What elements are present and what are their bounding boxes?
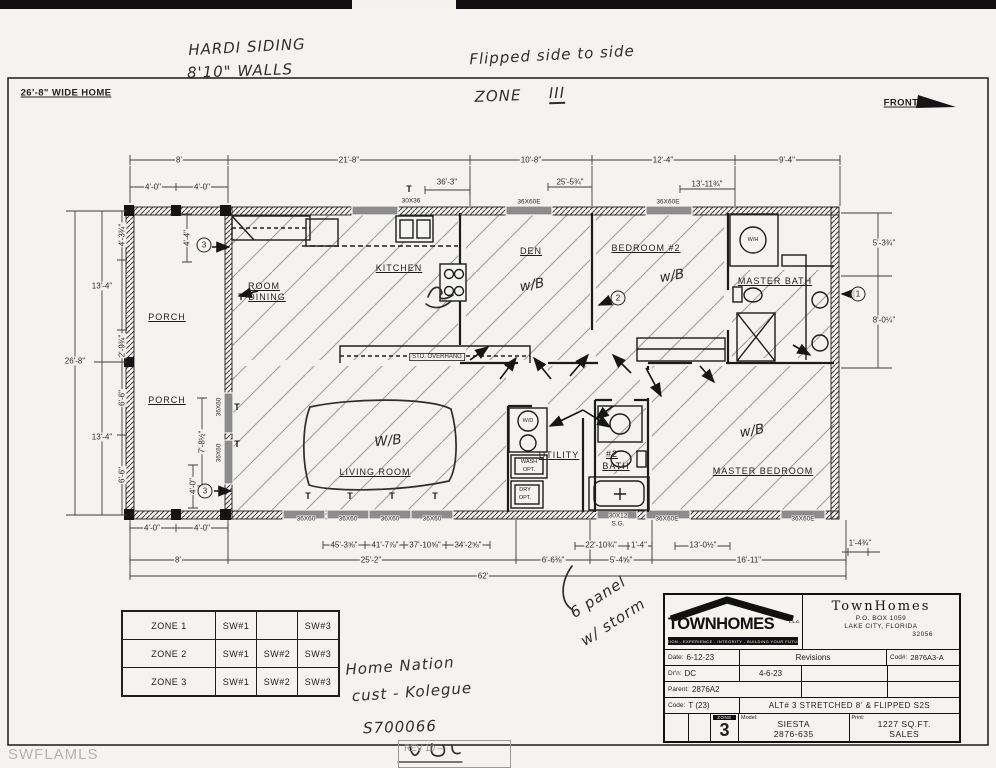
date-cell: Date: 6-12-23: [665, 650, 740, 665]
zone-table-cell: SW#1: [216, 640, 257, 668]
circ-3-bottom: 3: [198, 484, 213, 499]
alt-description-cell: ALT# 3 STRETCHED 8' & FLIPPED S2S: [740, 698, 959, 713]
address-line: P.O. BOX 1059: [803, 615, 959, 622]
dim-left-26-8: 26'-8": [64, 357, 86, 366]
drawn-cell: Dr'n: DC: [665, 666, 740, 681]
dim-porch-4-4: 4'-4": [183, 229, 192, 247]
dim-bot-22-10: 22'-10¾": [584, 541, 618, 550]
dim-left-13-4a: 13'-4": [91, 282, 113, 291]
dim-top-36-3: 36'-3": [436, 178, 458, 187]
address-zip: 32056: [803, 631, 959, 638]
win-bot-36x60e-2: 36X60E: [791, 516, 814, 523]
dim-top-10-8: 10'-8": [520, 156, 542, 165]
room-kitchen: KITCHEN: [376, 263, 423, 273]
dim-bot-45-3: 45'-3⅝": [329, 541, 358, 550]
model-name: SIESTA: [777, 720, 810, 729]
zone-table-cell: [257, 611, 298, 640]
empty-cell: [888, 682, 959, 697]
circ-1: 1: [851, 287, 866, 302]
t-mark-6: T: [432, 491, 438, 501]
win-top-30x36: 30X36: [402, 198, 421, 205]
code-number-value: 2876A3-A: [910, 653, 943, 662]
dim-bot-16-11: 16'-11": [736, 556, 762, 565]
empty-cell: [802, 666, 888, 681]
zone-table-cell: SW#3: [298, 611, 340, 640]
room-dining-1: ROOM: [248, 281, 280, 291]
label-dry-2: OPT.: [519, 495, 531, 501]
zone-table-cell: SW#1: [216, 611, 257, 640]
dim-top-12-4: 12'-4": [652, 156, 674, 165]
zone-table-row-label: ZONE 3: [122, 668, 216, 697]
hw-wb-master: w/B: [738, 421, 765, 441]
hw-6panel-1: 6 panel: [567, 572, 630, 621]
win-porch-1: 36X60: [216, 398, 223, 417]
empty-cell: [665, 714, 689, 743]
dim-left-4-3: 4'-3¾": [118, 223, 127, 248]
dim-bot-25-2: 25'-2": [360, 556, 382, 565]
win-bot-36x60e-1: 36X60E: [655, 516, 678, 523]
win-bot-2: 36X60: [339, 516, 358, 523]
zone-indicator: ZONE 3: [711, 714, 739, 743]
hw-wb-bed2: w/B: [658, 266, 685, 286]
room-porch-1: PORCH: [148, 312, 186, 322]
circ-2: 2: [611, 291, 626, 306]
dim-porch-4-0: 4'-0": [189, 477, 198, 495]
win-bot-3: 36X60: [381, 516, 400, 523]
model-cell: Model: SIESTA 2876-635: [739, 714, 850, 743]
dim-bot-13-0: 13'-0½": [688, 541, 717, 550]
rev-box: REV 10 —: [398, 740, 511, 768]
room-bedroom2: BEDROOM #2: [611, 243, 680, 253]
dim-bot-4-0b: 4'-0": [193, 524, 211, 533]
townhomes-logo: TOWNHOMES L.L.C. VISION - EXPERIENCE - I…: [665, 595, 803, 649]
dim-bot-5-4: 5'-4⅝": [609, 556, 634, 565]
zone-switch-table: ZONE 1SW#1SW#3ZONE 2SW#1SW#2SW#3ZONE 3SW…: [121, 610, 340, 697]
wide-home-label: 26'-8" WIDE HOME: [21, 88, 112, 99]
win-porch-2: 36X60: [216, 444, 223, 463]
label-wd: W/D: [523, 418, 534, 424]
zone-table-row-label: ZONE 2: [122, 640, 216, 668]
room-living: LIVING ROOM: [339, 467, 410, 477]
hw-zone-word: ZONE: [474, 86, 521, 106]
win-bot-30x12: 30X12: [609, 513, 628, 520]
zone-table-cell: SW#3: [298, 668, 340, 697]
dim-right-8-0: 8'-0¼": [872, 316, 897, 325]
drawn-label: Dr'n:: [668, 670, 682, 677]
address-line: LAKE CITY, FLORIDA: [803, 623, 959, 630]
watermark: SWFLAMLS: [8, 746, 99, 763]
zone-table-cell: SW#3: [298, 640, 340, 668]
room-master-bed: MASTER BEDROOM: [713, 466, 814, 476]
dim-bot-1-4b: 1'-4¾": [848, 539, 873, 548]
room-bath2-1: #2: [606, 449, 618, 459]
dim-left-6-6b: 6'-6": [118, 466, 127, 484]
dim-bot-41-7: 41'-7⅞": [370, 541, 399, 550]
label-wash-1: WASH: [521, 459, 537, 465]
revisions-cell: Revisions: [740, 650, 887, 665]
hw-wb-den: w/B: [518, 275, 545, 295]
dim-bot-6-6: 6'-6⅜": [541, 556, 566, 565]
dim-bot-8: 8': [174, 556, 182, 565]
dim-bot-37-10: 37'-10⅝": [408, 541, 442, 550]
t-mark-5: T: [389, 491, 395, 501]
room-master-bath: MASTER BATH: [738, 276, 812, 286]
print-label: Print:: [852, 715, 865, 721]
dim-top-13-11: 13'-11¾": [691, 180, 724, 189]
alt-description: ALT# 3 STRETCHED 8' & FLIPPED S2S: [769, 701, 930, 710]
parent-value: 2876A2: [692, 685, 720, 694]
label-wh: W/H: [748, 237, 759, 243]
logo-llc: L.L.C.: [789, 619, 800, 624]
hw-serial: S700066: [363, 717, 437, 738]
code-value: T (23): [688, 701, 709, 710]
win-bot-1: 36X60: [297, 516, 316, 523]
empty-cell: [802, 682, 888, 697]
t-mark-3: T: [305, 491, 311, 501]
parent-cell: Parent: 2876A2: [665, 682, 802, 697]
code-number-cell: Cod#: 2876A3-A: [887, 650, 959, 665]
logo-tagline-bar: VISION - EXPERIENCE - INTEGRITY - BUILDI…: [668, 637, 798, 645]
dim-left-2-9: 2'-9¾": [118, 334, 127, 359]
revision-entry: 4-6-23: [759, 669, 782, 678]
code-label: Code:: [668, 702, 685, 709]
front-label: FRONT: [884, 98, 919, 109]
dim-top-25-5: 25'-5¾": [555, 178, 584, 187]
print-sqft: 1227 SQ.FT.: [878, 720, 931, 729]
print-type: SALES: [889, 730, 919, 739]
code-number-label: Cod#:: [890, 654, 907, 661]
win-bot-4: 36X60: [423, 516, 442, 523]
dim-right-5-3: 5'-3¾": [872, 239, 897, 248]
zone-table-cell: SW#2: [257, 668, 298, 697]
t-mark-7: T: [234, 402, 240, 412]
code-cell: Code: T (23): [665, 698, 740, 713]
print-cell: Print: 1227 SQ.FT. SALES: [850, 714, 960, 743]
zone-number: 3: [711, 720, 738, 740]
room-den: DEN: [520, 246, 542, 256]
room-bath2-2: BATH: [602, 461, 629, 471]
hw-zone-num: III: [549, 84, 566, 105]
empty-cell: [888, 666, 959, 681]
label-std-overhang: STD. OVERHANG: [409, 353, 465, 361]
dim-top-4-0a: 4'-0": [144, 183, 162, 192]
dim-left-6-6a: 6'-6": [118, 389, 127, 407]
date-value: 6-12-23: [687, 653, 715, 662]
dim-bot-4-0a: 4'-0": [143, 524, 161, 533]
drawn-value: DC: [685, 669, 697, 678]
t-mark-2: T: [406, 184, 412, 194]
circ-3-top: 3: [197, 238, 212, 253]
hw-walls: 8'10" WALLS: [187, 60, 294, 82]
revision-entry-cell: 4-6-23: [740, 666, 802, 681]
room-porch-2: PORCH: [148, 395, 186, 405]
logo-wordmark: TOWNHOMES: [668, 615, 774, 634]
scanned-floor-plan-page: HARDI SIDING8'10" WALLSFlipped side to s…: [0, 0, 996, 768]
dim-top-8: 8': [175, 156, 183, 165]
zone-table-cell: SW#2: [257, 640, 298, 668]
t-mark-8: T: [234, 439, 240, 449]
zone-table-cell: SW#1: [216, 668, 257, 697]
hw-wb-living: W/B: [374, 432, 403, 451]
date-label: Date:: [668, 654, 684, 661]
zone-table-row: ZONE 1SW#1SW#3: [122, 611, 339, 640]
win-top-36x60e-2: 36X60E: [656, 199, 679, 206]
logo-tagline: VISION - EXPERIENCE - INTEGRITY - BUILDI…: [665, 639, 803, 644]
zone-table-row: ZONE 2SW#1SW#2SW#3: [122, 640, 339, 668]
revisions-label: Revisions: [796, 653, 831, 662]
empty-cell: [689, 714, 711, 743]
dim-porch-7-8: 7'-8½": [198, 430, 207, 455]
win-bot-sg: S.G.: [611, 521, 624, 528]
zone-table-row: ZONE 3SW#1SW#2SW#3: [122, 668, 339, 697]
label-wash-2: OPT.: [523, 467, 535, 473]
hw-6panel-2: w/ storm: [577, 594, 649, 649]
model-number: 2876-635: [774, 730, 814, 739]
hw-siding: HARDI SIDING: [188, 35, 306, 59]
company-name: TownHomes: [803, 599, 959, 614]
zone-table-row-label: ZONE 1: [122, 611, 216, 640]
dim-bot-62: 62': [477, 572, 489, 581]
hw-customer-1: Home Nation: [345, 653, 455, 679]
parent-label: Parent:: [668, 686, 689, 693]
title-block: TOWNHOMES L.L.C. VISION - EXPERIENCE - I…: [663, 593, 961, 743]
dim-top-9-4: 9'-4": [778, 156, 796, 165]
dim-top-21-8: 21'-8": [338, 156, 360, 165]
t-mark-4: T: [347, 491, 353, 501]
dim-top-4-0b: 4'-0": [193, 183, 211, 192]
dim-bot-34-2: 34'-2⅝": [453, 541, 482, 550]
win-top-36x60e-1: 36X60E: [517, 199, 540, 206]
company-address: TownHomes P.O. BOX 1059 LAKE CITY, FLORI…: [803, 595, 959, 649]
hw-flipped: Flipped side to side: [469, 42, 635, 69]
room-dining-2: DINING: [248, 292, 286, 302]
dim-left-13-4b: 13'-4": [91, 433, 113, 442]
dim-bot-1-4: 1'-4": [630, 541, 648, 550]
model-label: Model:: [741, 715, 758, 721]
label-dry-1: DRY: [519, 487, 531, 493]
t-mark-1: T: [238, 292, 244, 302]
room-utility: UTILITY: [539, 450, 580, 460]
hw-customer-2: cust - Kolegue: [351, 679, 472, 705]
